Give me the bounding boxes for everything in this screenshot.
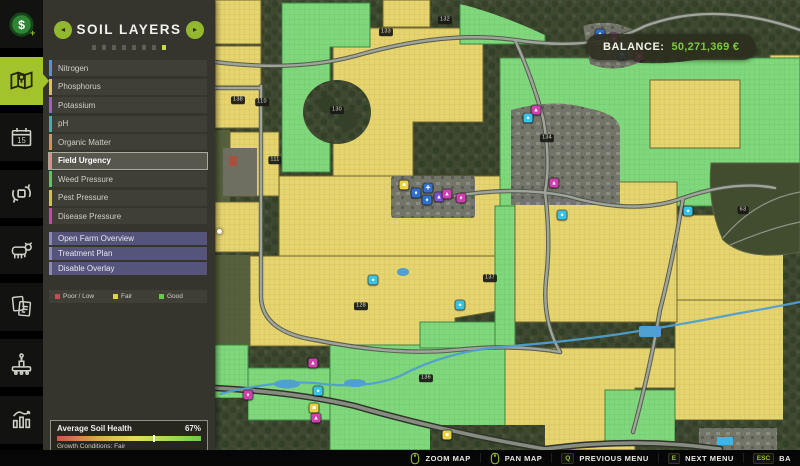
sidebar-item-contracts[interactable] [0, 283, 43, 331]
field-number-label: 134 [540, 134, 554, 142]
soil-health-value: 67% [185, 424, 201, 433]
hotkey-label: NEXT MENU [685, 454, 734, 463]
calendar-icon: 15 [8, 124, 35, 151]
page-dot [122, 45, 127, 50]
map-poi-icon[interactable]: ✚ [424, 184, 433, 193]
legend-entry: Good [159, 293, 183, 300]
page-dot [142, 45, 147, 50]
legend-bar: Poor / LowFairGood [49, 290, 207, 303]
layer-item-potassium[interactable]: Potassium [49, 97, 207, 113]
layer-item-organic-matter[interactable]: Organic Matter [49, 134, 207, 150]
key-badge-e: E [668, 453, 680, 464]
legend-entry: Poor / Low [55, 293, 113, 300]
prev-page-arrow-icon[interactable] [54, 21, 72, 39]
svg-text:15: 15 [17, 136, 26, 145]
page-dot [102, 45, 107, 50]
legend-swatch [159, 294, 164, 299]
layer-label: Field Urgency [58, 156, 111, 165]
map-poi-icon[interactable]: ▲ [532, 106, 541, 115]
field-number-label: 130 [330, 106, 344, 114]
map-poi-icon[interactable]: ▲ [443, 190, 452, 199]
hotkey-ba: ESCBA [743, 453, 800, 463]
layer-accent [49, 134, 52, 150]
layer-label: Organic Matter [58, 138, 111, 147]
layer-item-disease-pressure[interactable]: Disease Pressure [49, 208, 207, 224]
balance-display: BALANCE: 50,271,369 € [586, 34, 756, 60]
layer-accent [49, 171, 52, 187]
page-dot [112, 45, 117, 50]
layer-accent [49, 79, 52, 95]
treatment-plan-button[interactable]: Treatment Plan [49, 247, 207, 260]
soil-layers-panel: SOIL LAYERS NitrogenPhosphorusPotassiump… [43, 0, 215, 450]
field-number-label: 63 [738, 206, 749, 214]
layer-label: Nitrogen [58, 64, 88, 73]
map-poi-icon[interactable]: ■ [443, 431, 452, 440]
map-poi-icon[interactable]: ♦ [457, 194, 466, 203]
panel-title: SOIL LAYERS [71, 22, 187, 37]
legend-entry: Fair [113, 293, 159, 300]
key-badge-esc: ESC [753, 453, 774, 464]
sidebar-item-animals[interactable] [0, 226, 43, 274]
layer-label: Potassium [58, 101, 95, 110]
map-markers-layer: ♦▲✚▲▲●▲●●■♦✚♦▲▲♦▲●■▲♦■●●1381101111301331… [215, 0, 800, 450]
layer-item-field-urgency[interactable]: Field Urgency [49, 153, 207, 169]
action-buttons: Open Farm OverviewTreatment PlanDisable … [49, 232, 207, 277]
map-poi-icon[interactable]: ● [684, 207, 693, 216]
layer-item-nitrogen[interactable]: Nitrogen [49, 60, 207, 76]
field-number-label: 133 [379, 28, 393, 36]
balance-label: BALANCE: [603, 41, 664, 53]
sidebar-item-finances[interactable]: $+ [0, 0, 43, 48]
sidebar: $+15 [0, 0, 43, 450]
layer-label: Weed Pressure [58, 175, 113, 184]
map-poi-icon[interactable]: ▲ [550, 179, 559, 188]
field-number-label: 128 [354, 302, 368, 310]
mouse-icon [490, 452, 500, 465]
map-poi-icon[interactable]: ♦ [244, 391, 253, 400]
page-indicator-dots [43, 45, 215, 50]
field-number-label: 110 [255, 98, 269, 106]
field-number-label: 136 [419, 374, 433, 382]
statistics-icon [8, 406, 35, 433]
svg-text:+: + [30, 27, 35, 37]
legend-label: Good [167, 293, 183, 300]
production-icon [8, 180, 35, 207]
disable-overlay-button[interactable]: Disable Overlay [49, 262, 207, 275]
layer-item-weed-pressure[interactable]: Weed Pressure [49, 171, 207, 187]
layer-label: Disease Pressure [58, 212, 121, 221]
next-page-arrow-icon[interactable] [186, 21, 204, 39]
layer-label: Phosphorus [58, 82, 101, 91]
hotkey-label: PAN MAP [505, 454, 543, 463]
map-poi-icon[interactable]: ♦ [412, 189, 421, 198]
soil-health-marker [153, 435, 155, 442]
mouse-wheel-icon [410, 452, 420, 465]
layer-item-pest-pressure[interactable]: Pest Pressure [49, 190, 207, 206]
page-dot [132, 45, 137, 50]
key-badge-q: Q [561, 453, 574, 464]
sidebar-item-map[interactable] [0, 57, 43, 105]
finances-icon: $+ [8, 11, 35, 38]
hotkey-label: ZOOM MAP [425, 454, 470, 463]
layer-accent [49, 97, 52, 113]
sidebar-item-statistics[interactable] [0, 396, 43, 444]
page-dot [92, 45, 97, 50]
hotkey-next-menu: ENEXT MENU [658, 453, 743, 463]
legend-label: Fair [121, 293, 132, 300]
app-window: ♦▲✚▲▲●▲●●■♦✚♦▲▲♦▲●■▲♦■●●1381101111301331… [0, 0, 800, 466]
mouse-cursor [217, 229, 222, 234]
balance-value: 50,271,369 € [671, 41, 739, 53]
hotkey-bar: ZOOM MAPPAN MAPQPREVIOUS MENUENEXT MENUE… [0, 450, 800, 466]
sidebar-item-calendar[interactable]: 15 [0, 113, 43, 161]
layer-accent [49, 60, 52, 76]
open-farm-overview-button[interactable]: Open Farm Overview [49, 232, 207, 245]
soil-health-title: Average Soil Health [57, 424, 132, 433]
sidebar-item-production-chains[interactable] [0, 339, 43, 387]
map-poi-icon[interactable]: ● [314, 387, 323, 396]
map-poi-icon[interactable]: ♦ [423, 196, 432, 205]
layer-item-phosphorus[interactable]: Phosphorus [49, 79, 207, 95]
field-number-label: 138 [231, 96, 245, 104]
layer-accent [49, 208, 52, 224]
hotkey-pan-map: PAN MAP [480, 453, 552, 463]
field-number-label: 137 [483, 274, 497, 282]
layer-item-ph[interactable]: pH [49, 116, 207, 132]
map-poi-icon[interactable]: ■ [400, 181, 409, 190]
growth-conditions: Growth Conditions: Fair [57, 443, 201, 450]
soil-health-gauge [57, 436, 201, 441]
field-number-label: 132 [438, 16, 452, 24]
contracts-icon [8, 293, 35, 320]
legend-swatch [55, 294, 60, 299]
page-dot [162, 45, 167, 50]
sidebar-item-production[interactable] [0, 170, 43, 218]
layer-label: Pest Pressure [58, 193, 108, 202]
map-poi-icon[interactable]: ● [558, 211, 567, 220]
map-poi-icon[interactable]: ■ [310, 404, 319, 413]
svg-text:$: $ [18, 18, 25, 32]
layer-accent [49, 153, 52, 169]
production-chains-icon [8, 350, 35, 377]
world-map[interactable]: ♦▲✚▲▲●▲●●■♦✚♦▲▲♦▲●■▲♦■●●1381101111301331… [215, 0, 800, 450]
legend-label: Poor / Low [63, 293, 94, 300]
legend-swatch [113, 294, 118, 299]
hotkey-label: BA [779, 454, 791, 463]
layer-label: pH [58, 119, 68, 128]
layer-accent [49, 190, 52, 206]
hotkey-previous-menu: QPREVIOUS MENU [551, 453, 658, 463]
map-poi-icon[interactable]: ● [456, 301, 465, 310]
hotkey-zoom-map: ZOOM MAP [401, 453, 479, 463]
map-icon [8, 67, 35, 94]
field-number-label: 111 [268, 156, 281, 164]
map-poi-icon[interactable]: ▲ [312, 414, 321, 423]
page-dot [152, 45, 157, 50]
map-poi-icon[interactable]: ● [369, 276, 378, 285]
layer-list: NitrogenPhosphorusPotassiumpHOrganic Mat… [49, 60, 207, 227]
hotkey-label: PREVIOUS MENU [579, 454, 648, 463]
map-poi-icon[interactable]: ● [524, 114, 533, 123]
layer-accent [49, 116, 52, 132]
animals-icon [8, 237, 35, 264]
map-poi-icon[interactable]: ▲ [309, 359, 318, 368]
